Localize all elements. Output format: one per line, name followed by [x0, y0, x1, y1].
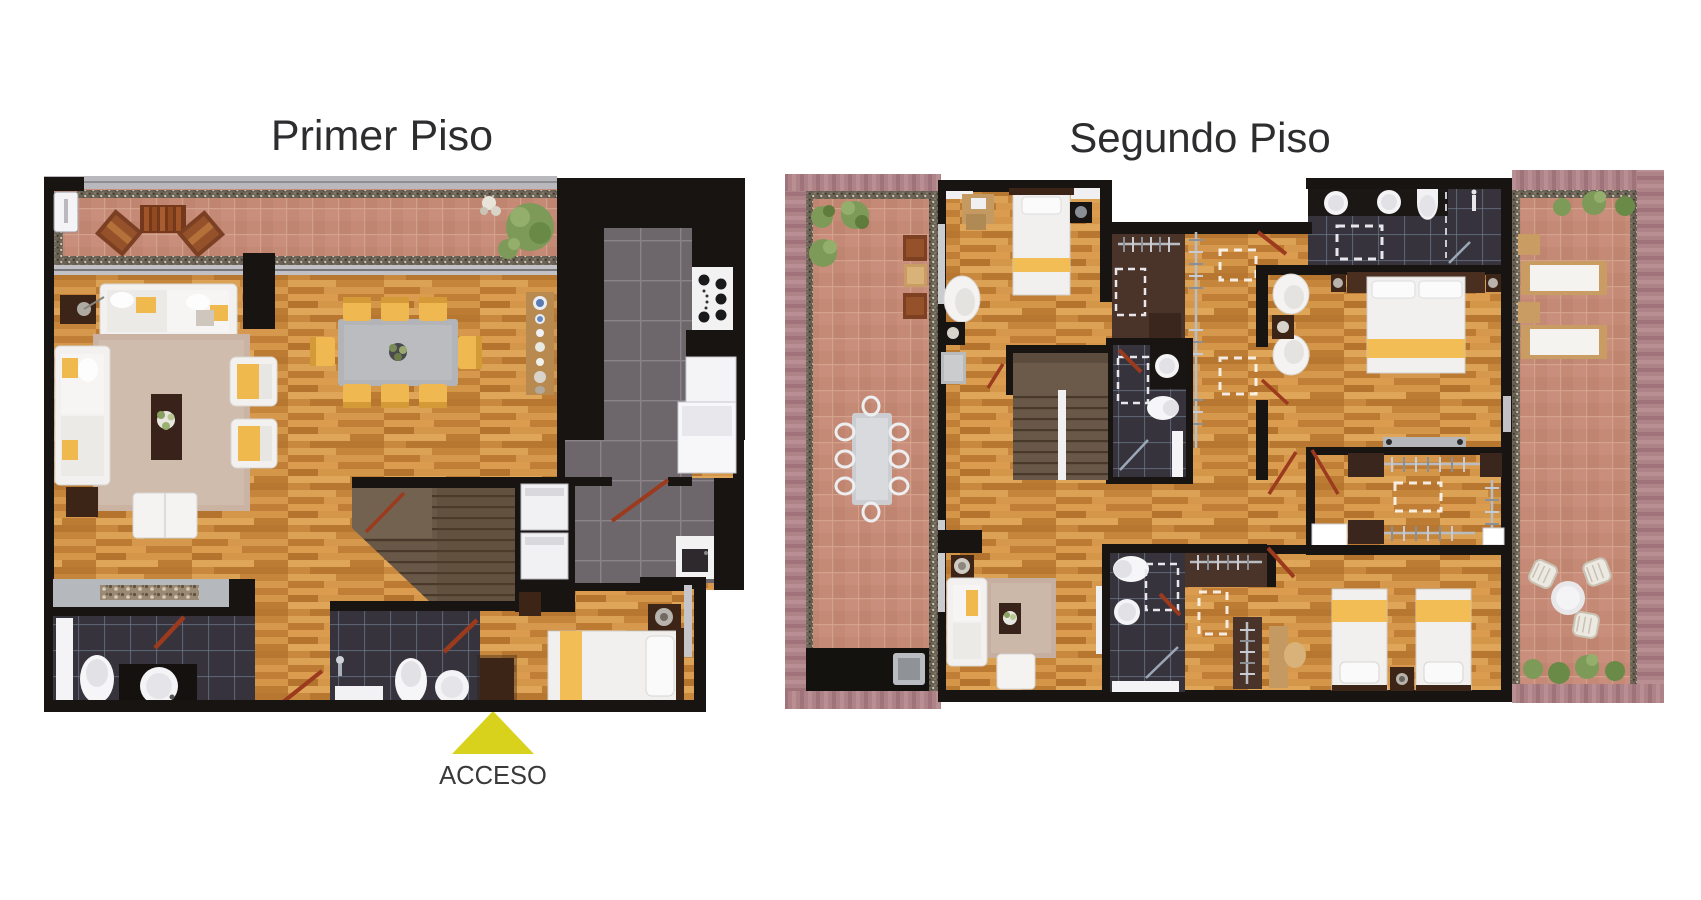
svg-text:Segundo Piso: Segundo Piso [1069, 114, 1331, 161]
svg-text:ACCESO: ACCESO [439, 762, 547, 790]
svg-text:Primer Piso: Primer Piso [271, 112, 493, 160]
